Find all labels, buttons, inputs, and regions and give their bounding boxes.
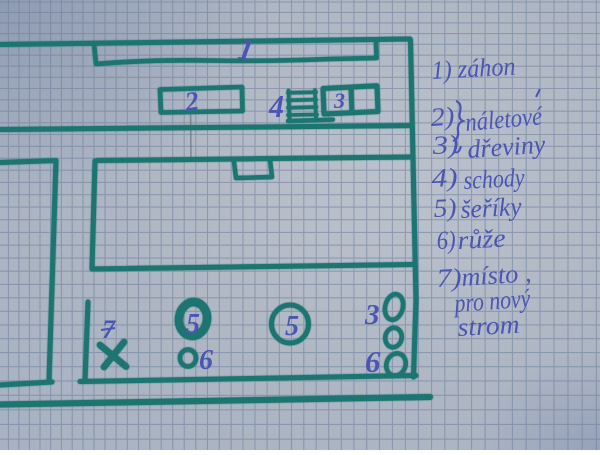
svg-text:4): 4) <box>431 163 458 193</box>
svg-text:růže: růže <box>457 224 506 255</box>
svg-text:strom: strom <box>457 310 520 342</box>
svg-text:šeříky: šeříky <box>460 192 523 224</box>
svg-text:5: 5 <box>186 309 200 340</box>
svg-text:6: 6 <box>199 345 213 376</box>
svg-text:2): 2) <box>429 101 455 132</box>
svg-text:dřeviny: dřeviny <box>466 130 546 164</box>
svg-text:5: 5 <box>285 311 299 342</box>
svg-text:schody: schody <box>463 163 526 195</box>
svg-text:3: 3 <box>364 299 380 331</box>
svg-text:5): 5) <box>433 193 457 223</box>
svg-text:4: 4 <box>268 88 284 124</box>
svg-text:3): 3) <box>431 130 460 160</box>
svg-text:1) záhon: 1) záhon <box>431 52 516 85</box>
svg-text:6): 6) <box>436 225 456 255</box>
svg-text:3: 3 <box>333 88 345 113</box>
svg-text:6: 6 <box>365 344 381 379</box>
